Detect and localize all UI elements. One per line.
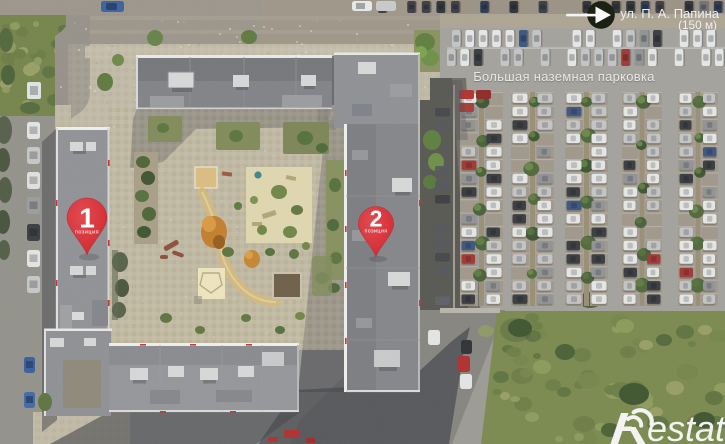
svg-text:(150 м): (150 м) (678, 18, 717, 32)
svg-text:позиция: позиция (75, 230, 99, 236)
svg-text:Большая наземная парковка: Большая наземная парковка (473, 69, 655, 84)
svg-text:позиция: позиция (364, 229, 387, 235)
svg-text:estate: estate (647, 408, 725, 444)
svg-text:2: 2 (370, 205, 383, 231)
